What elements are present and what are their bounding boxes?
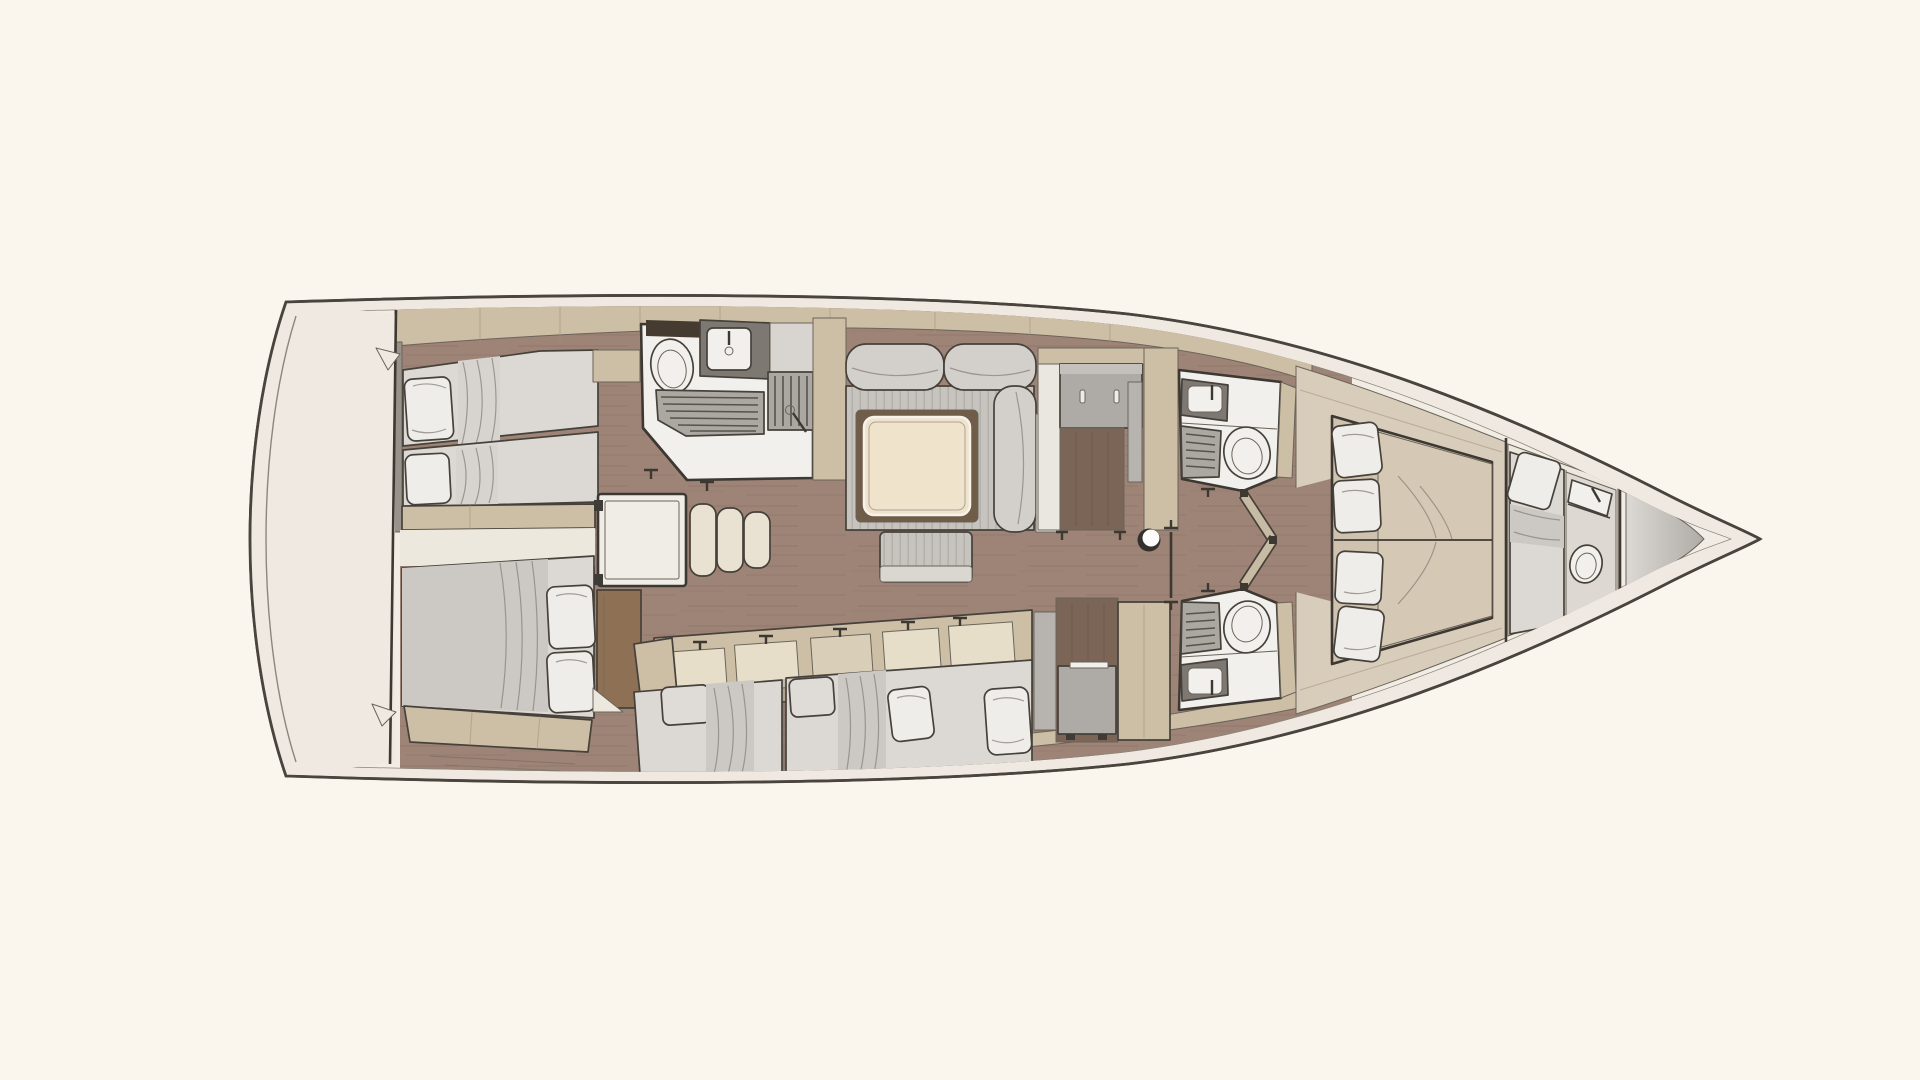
twin-berth-1-pillow: [404, 376, 454, 441]
mast-post: [1138, 529, 1161, 552]
sofa-corner-cushion: [994, 386, 1036, 532]
aft-port-foot-shelf: [402, 504, 595, 530]
dresser-handle: [1070, 662, 1108, 668]
double-berth-duvet: [402, 559, 548, 712]
companionway-left-wall: [1038, 348, 1060, 530]
nav-seat-cushion-2: [717, 508, 743, 572]
owner-cabin-entry-floor: [1288, 478, 1334, 602]
mid-cabin-starboard: [634, 610, 1032, 776]
sofa-back-cushion-2: [944, 344, 1036, 390]
mid-head-starboard-shower-bench: [1181, 602, 1221, 654]
owner-pillow-2: [1333, 479, 1382, 533]
owner-pillow-4: [1333, 605, 1385, 662]
dresser-cabinet: [1058, 666, 1116, 734]
owner-pillow-1: [1331, 421, 1383, 478]
mid-head-port: [1179, 370, 1296, 491]
mid-berth-2-pillow-a: [789, 677, 836, 718]
aft-head-wardrobe: [813, 318, 846, 480]
yacht-floorplan: [0, 0, 1920, 1080]
mid-head-port-sink: [1188, 386, 1222, 412]
companionway-door-panel: [1128, 382, 1142, 482]
stern-deck: [250, 302, 400, 776]
ottoman-base-band: [880, 566, 972, 582]
double-berth-pillow-1: [546, 585, 595, 649]
chart-table: [598, 494, 686, 586]
nav-seat-cushion-1: [690, 504, 716, 576]
companionway-cabinet-top: [1060, 364, 1142, 374]
lower-cabinet-block: [1034, 598, 1170, 742]
chart-table-hinge-2: [594, 574, 603, 585]
owner-pillow-3: [1335, 551, 1384, 605]
companionway-step-recess: [1060, 428, 1124, 530]
cabinet-handle-1: [1080, 390, 1085, 403]
dresser-foot-1: [1066, 734, 1075, 740]
lower-door-panel: [1034, 612, 1056, 730]
sofa-back-cushion-1: [846, 344, 944, 390]
door-hinge-block-1: [1240, 489, 1248, 497]
saloon-table: [864, 417, 970, 515]
nav-seat-cushion-3: [744, 512, 770, 568]
mid-head-starboard-sink: [1188, 668, 1222, 694]
chart-table-hinge-1: [594, 500, 603, 511]
door-hinge-block-3: [1269, 536, 1277, 544]
mid-berth-2-pillow-b: [887, 686, 935, 743]
cabinet-handle-2: [1114, 390, 1119, 403]
mid-berth-2-pillow-c: [984, 687, 1032, 756]
door-hinge-block-2: [1240, 583, 1248, 591]
dresser-foot-2: [1098, 734, 1107, 740]
mid-head-port-shower-bench: [1181, 426, 1221, 478]
floorplan-canvas: [0, 0, 1920, 1080]
twin-berth-2-pillow: [405, 453, 452, 505]
mid-berth-1-pillow: [661, 684, 712, 725]
aft-head-shower-bench: [768, 372, 813, 430]
aft-head-faucet: [725, 347, 733, 355]
berth-head-shelf: [593, 350, 640, 382]
mid-head-starboard: [1179, 589, 1296, 710]
aft-head-side-panel: [770, 323, 813, 378]
aft-head: [641, 318, 846, 480]
companionway-right-wall: [1144, 348, 1178, 530]
